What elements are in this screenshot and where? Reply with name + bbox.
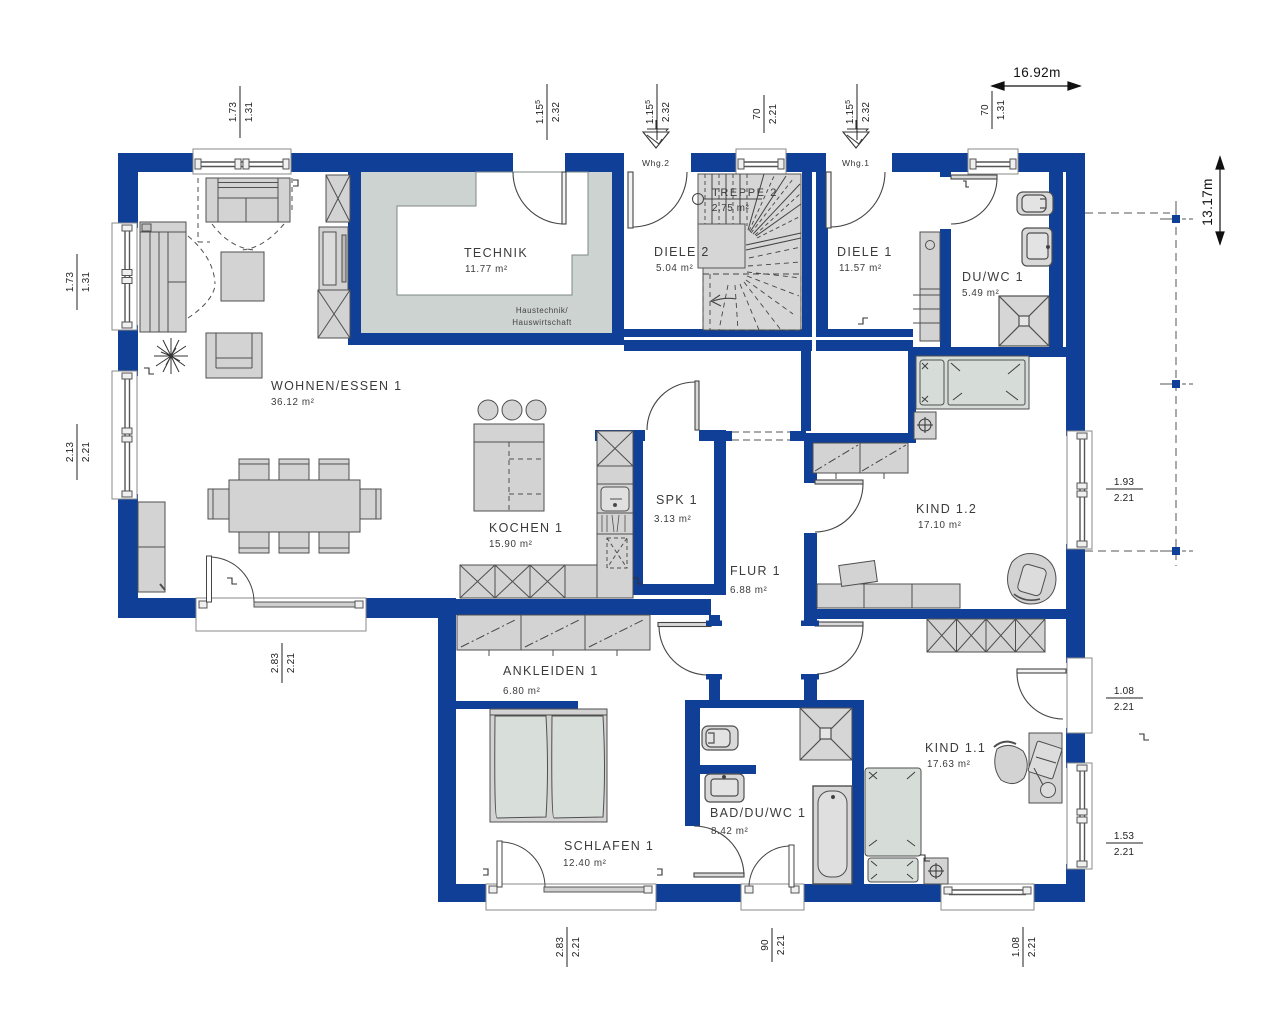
svg-text:2.21: 2.21 [1114,493,1135,504]
svg-text:2.21: 2.21 [1114,847,1135,858]
svg-text:DIELE 2: DIELE 2 [654,245,710,259]
svg-text:5.49 m²: 5.49 m² [962,288,1000,299]
svg-text:2.21: 2.21 [1114,702,1135,713]
svg-text:36.12 m²: 36.12 m² [271,397,315,408]
svg-text:3.13 m²: 3.13 m² [654,514,692,525]
svg-text:1.73: 1.73 [65,272,76,293]
svg-text:13.17m: 13.17m [1200,178,1215,225]
svg-text:KOCHEN 1: KOCHEN 1 [489,521,563,535]
svg-text:FLUR 1: FLUR 1 [730,564,781,578]
svg-text:2.21: 2.21 [776,935,787,956]
svg-text:WOHNEN/ESSEN 1: WOHNEN/ESSEN 1 [271,379,402,393]
svg-text:15.90 m²: 15.90 m² [489,539,533,550]
svg-text:12.40 m²: 12.40 m² [563,858,607,869]
svg-text:DIELE 1: DIELE 1 [837,245,893,259]
svg-text:KIND 1.2: KIND 1.2 [916,502,977,516]
svg-text:2.21: 2.21 [571,937,582,958]
svg-text:2.83: 2.83 [270,653,281,674]
svg-text:1.31: 1.31 [244,102,255,123]
svg-text:Haustechnik/: Haustechnik/ [516,306,569,315]
svg-text:2.75 m²: 2.75 m² [712,203,750,214]
svg-text:Whg.2: Whg.2 [642,158,670,168]
svg-text:Hauswirtschaft: Hauswirtschaft [512,318,572,327]
svg-text:DU/WC 1: DU/WC 1 [962,270,1024,284]
svg-text:5.04 m²: 5.04 m² [656,263,694,274]
svg-text:2.21: 2.21 [1027,937,1038,958]
svg-text:8.42 m²: 8.42 m² [711,826,749,837]
svg-text:90: 90 [760,939,771,951]
svg-text:6.80 m²: 6.80 m² [503,686,541,697]
svg-text:2.32: 2.32 [861,102,872,123]
svg-text:1.08: 1.08 [1011,937,1022,958]
svg-text:1.08: 1.08 [1114,686,1135,697]
svg-text:2.21: 2.21 [286,653,297,674]
svg-text:SPK 1: SPK 1 [656,493,698,507]
svg-text:2.32: 2.32 [551,102,562,123]
svg-text:1.31: 1.31 [81,272,92,293]
svg-text:2.83: 2.83 [555,937,566,958]
svg-text:1.53: 1.53 [1114,831,1135,842]
svg-text:70: 70 [752,108,763,120]
svg-text:17.10 m²: 17.10 m² [918,520,962,531]
svg-text:KIND 1.1: KIND 1.1 [925,741,986,755]
svg-text:1.31: 1.31 [996,100,1007,121]
svg-text:2.13: 2.13 [65,442,76,463]
svg-text:1.93: 1.93 [1114,477,1135,488]
svg-text:11.77 m²: 11.77 m² [465,264,508,275]
svg-text:2.32: 2.32 [661,102,672,123]
svg-text:ANKLEIDEN 1: ANKLEIDEN 1 [503,664,599,678]
svg-text:17.63 m²: 17.63 m² [927,759,971,770]
svg-text:2.21: 2.21 [768,104,779,125]
svg-text:TREPPE 2: TREPPE 2 [712,187,778,199]
svg-text:BAD/DU/WC 1: BAD/DU/WC 1 [710,806,806,820]
svg-text:70: 70 [980,104,991,116]
svg-text:11.57 m²: 11.57 m² [839,263,882,274]
svg-text:1.73: 1.73 [228,102,239,123]
svg-text:2.21: 2.21 [81,442,92,463]
svg-text:Whg.1: Whg.1 [842,158,870,168]
svg-text:16.92m: 16.92m [1013,65,1060,80]
svg-text:6.88 m²: 6.88 m² [730,585,768,596]
svg-text:SCHLAFEN 1: SCHLAFEN 1 [564,839,654,853]
svg-text:TECHNIK: TECHNIK [464,246,528,260]
